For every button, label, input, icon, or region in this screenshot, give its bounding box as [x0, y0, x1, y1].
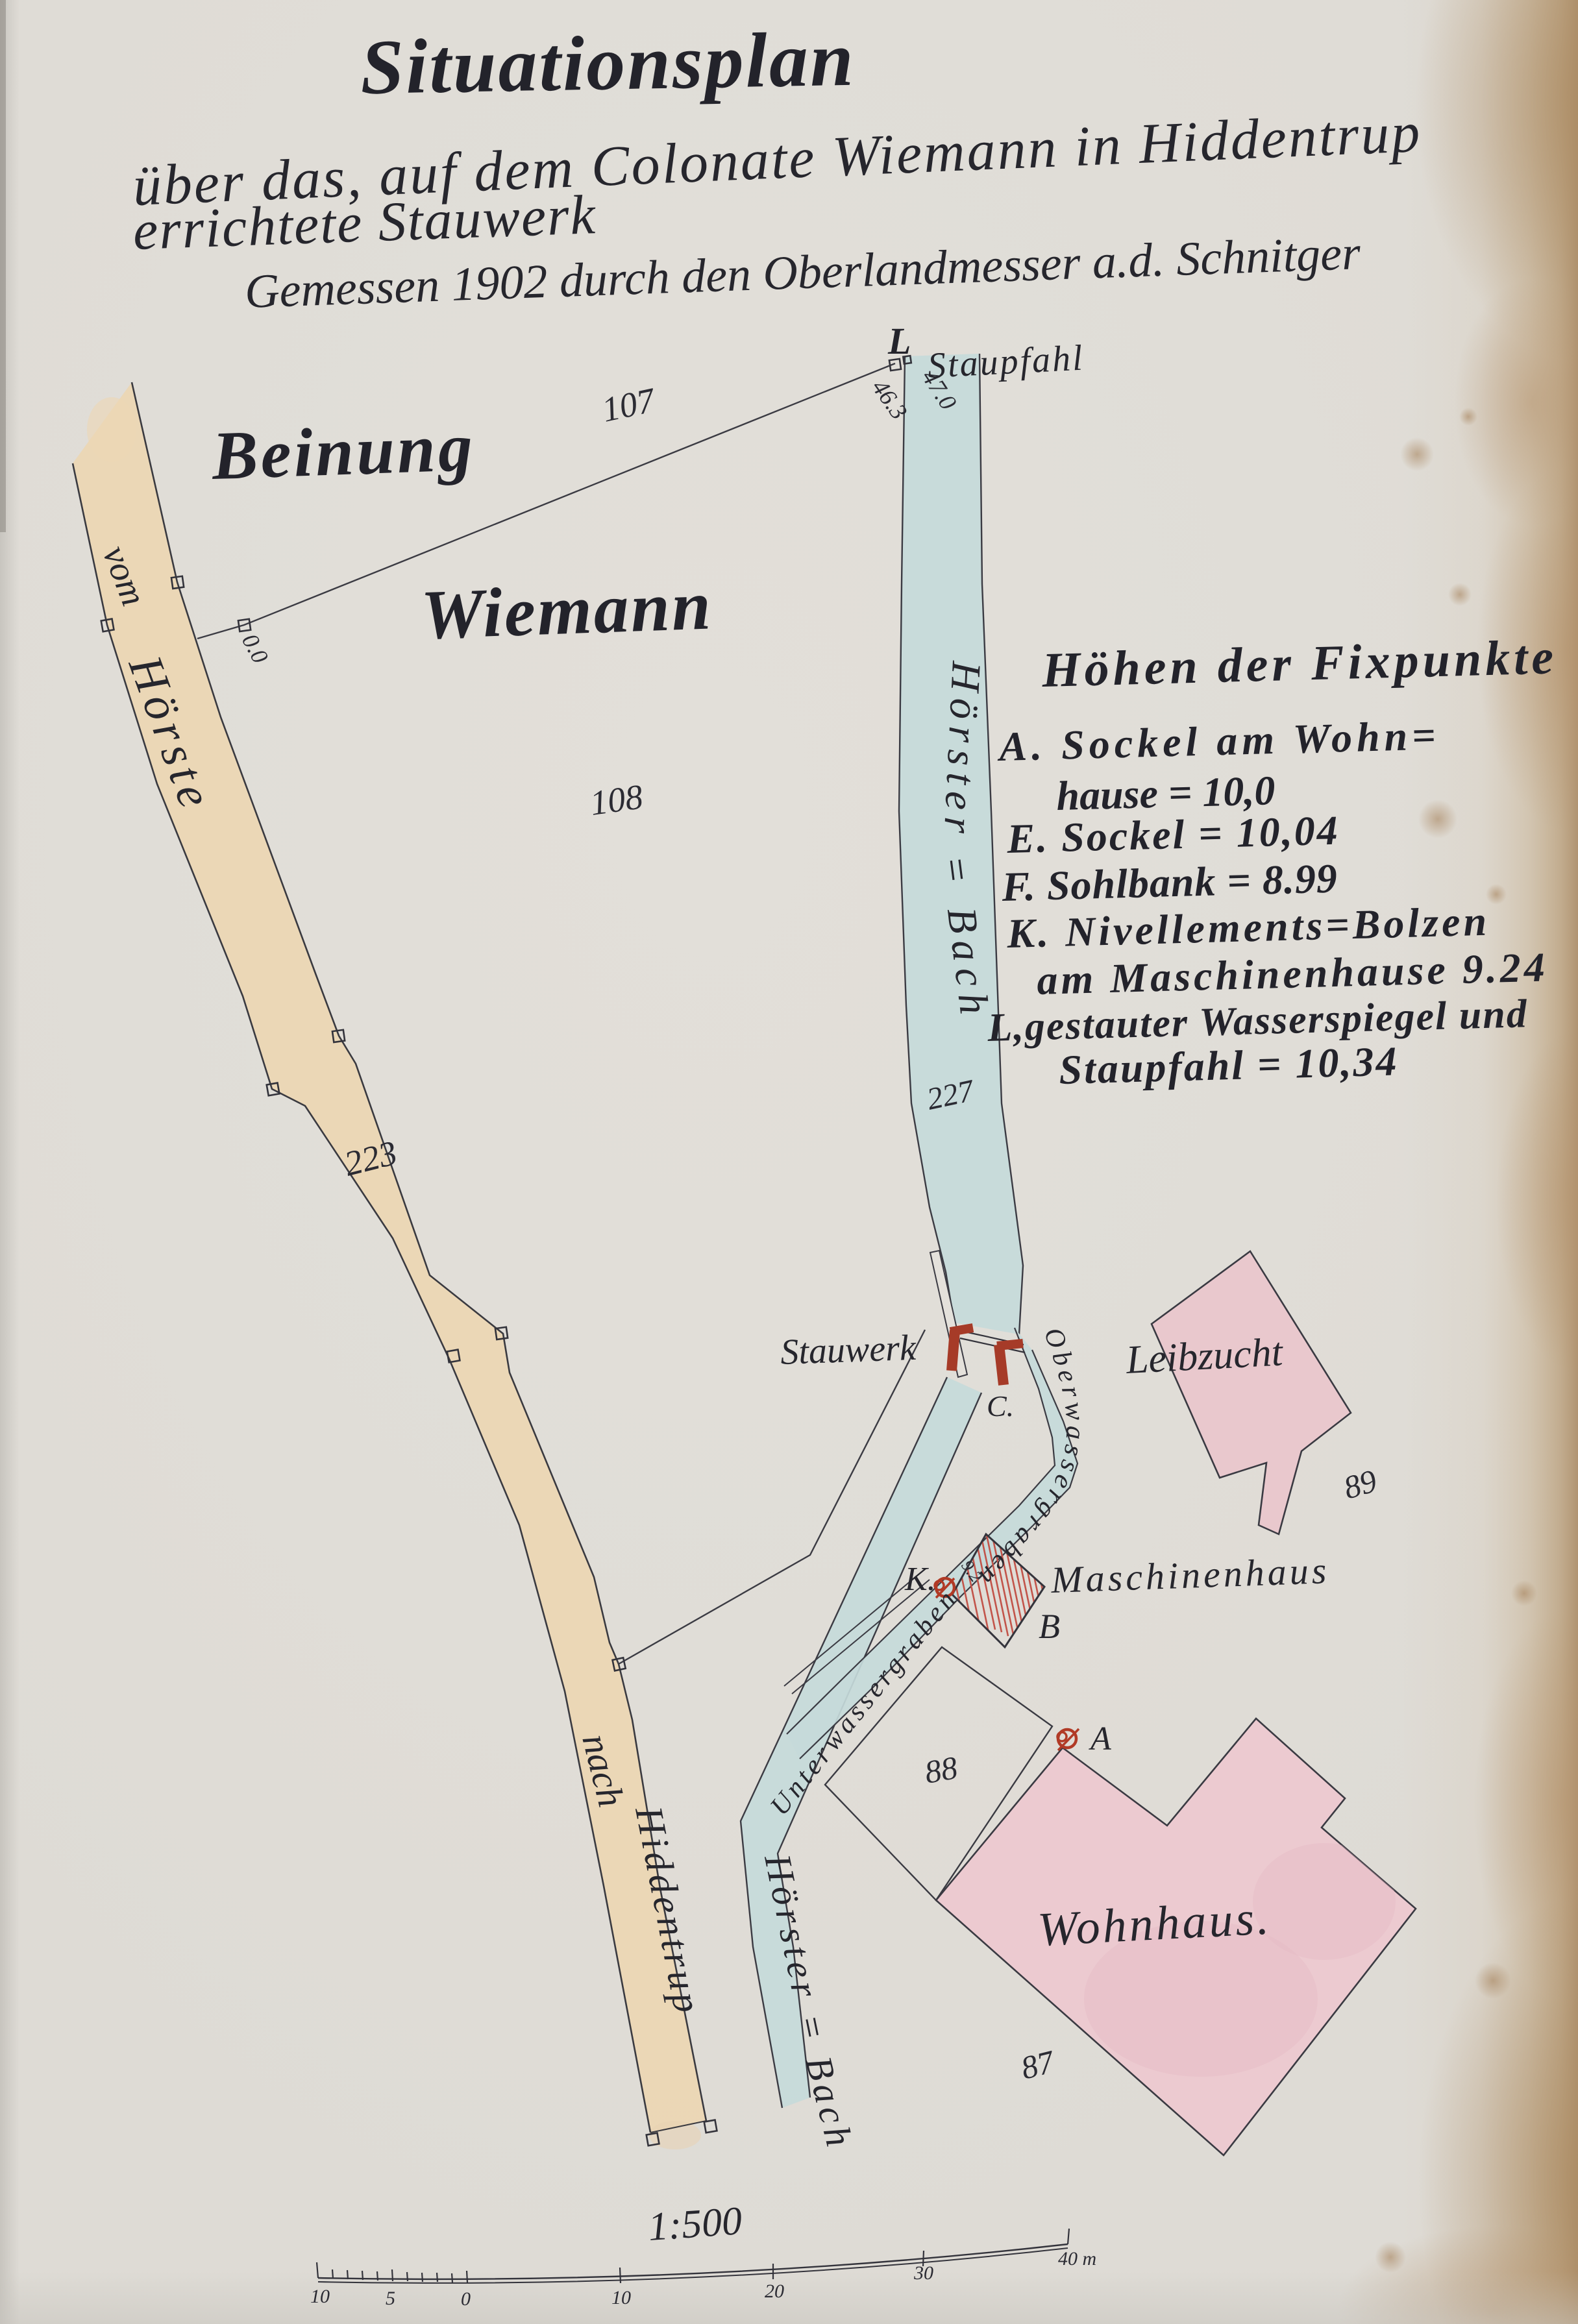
- svg-text:F. Sohlbank = 8.99: F. Sohlbank = 8.99: [1001, 855, 1338, 910]
- svg-text:Staupfahl: Staupfahl: [926, 337, 1085, 386]
- svg-text:30: 30: [913, 2262, 933, 2284]
- svg-text:L: L: [887, 320, 911, 362]
- svg-text:40 m: 40 m: [1058, 2248, 1096, 2269]
- svg-text:B: B: [1039, 1607, 1060, 1646]
- svg-text:0: 0: [461, 2288, 471, 2310]
- svg-text:Beinung: Beinung: [210, 409, 476, 494]
- svg-text:10: 10: [611, 2287, 631, 2308]
- svg-text:88: 88: [922, 1749, 960, 1791]
- svg-text:K.: K.: [904, 1561, 936, 1598]
- svg-text:Stauwerk: Stauwerk: [780, 1328, 917, 1373]
- svg-text:Situationsplan: Situationsplan: [360, 16, 856, 110]
- svg-text:Wiemann: Wiemann: [420, 567, 714, 654]
- svg-text:C.: C.: [987, 1389, 1014, 1423]
- svg-text:Staupfahl = 10,34: Staupfahl = 10,34: [1059, 1038, 1399, 1093]
- svg-text:E. Sockel = 10,04: E. Sockel = 10,04: [1006, 807, 1340, 862]
- svg-text:1:500: 1:500: [647, 2199, 743, 2249]
- svg-text:10: 10: [310, 2286, 330, 2307]
- svg-text:Leibzucht: Leibzucht: [1124, 1330, 1285, 1382]
- svg-text:5: 5: [386, 2288, 395, 2309]
- svg-text:A: A: [1089, 1720, 1111, 1757]
- svg-text:20: 20: [765, 2281, 784, 2302]
- svg-text:108: 108: [587, 777, 645, 823]
